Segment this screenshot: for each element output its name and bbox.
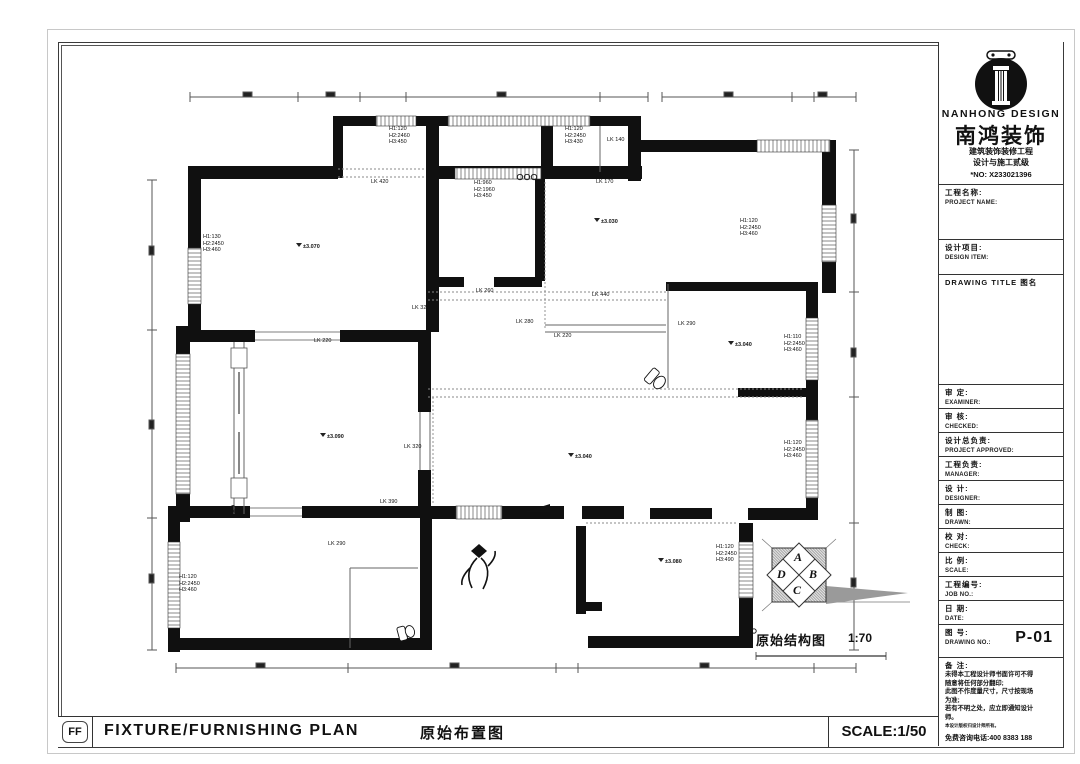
field-label-cn: 工程编号:	[945, 579, 1063, 590]
window-height-label: H1:130 H2:2450 H3:460	[203, 234, 224, 254]
title-block-field-row: 制 图:DRAWN:	[939, 505, 1063, 529]
opening-width-label: LK 290	[678, 321, 695, 328]
scale-value: SCALE:1/50	[829, 717, 939, 746]
note-line: 随意将任何部分翻印;	[945, 680, 1063, 689]
elevation-label: ±3.030	[594, 218, 618, 226]
window-height-label: H1:120 H2:2450 H3:490	[716, 544, 737, 564]
brand-license-no: *NO: X233021396	[939, 170, 1063, 179]
opening-width-label: LK 420	[371, 179, 388, 186]
title-block-field-row: 比 例:SCALE:	[939, 553, 1063, 577]
field-label-en: DESIGNER:	[945, 496, 1063, 502]
note-line: 师。	[945, 714, 1063, 723]
field-label-cn: 日 期:	[945, 603, 1063, 614]
wardrobe-panels	[231, 348, 247, 498]
title-block-field-row: 审 核:CHECKED:	[939, 409, 1063, 433]
title-block-field-row: 校 对:CHECK:	[939, 529, 1063, 553]
compass-letter: B	[809, 567, 817, 582]
note-line: 若有不明之处，应立即通知设计	[945, 705, 1063, 714]
title-block: NANHONG DESIGN 南鸿装饰 建筑装饰装修工程 设计与施工贰级 *NO…	[938, 42, 1063, 746]
nanhong-logo-icon	[973, 50, 1029, 112]
brand-subtitle-2: 设计与施工贰级	[939, 157, 1063, 168]
title-block-field-row: 设 计:DESIGNER:	[939, 481, 1063, 505]
title-block-fields: 工程名称:PROJECT NAME:设计项目:DESIGN ITEM:DRAWI…	[939, 185, 1063, 625]
compass-letter: C	[793, 583, 801, 598]
field-label-en: DRAWN:	[945, 520, 1063, 526]
window-height-label: H1:120 H2:2450 H3:460	[740, 218, 761, 238]
note-line: 未得本工程设计师书面许可不得	[945, 671, 1063, 680]
field-label-cn: 设 计:	[945, 483, 1063, 494]
opening-width-label: LK 140	[607, 137, 624, 144]
sheet-code-badge: FF	[62, 721, 88, 743]
bottom-title-bar: FF FIXTURE/FURNISHING PLAN 原始布置图 SCALE:1…	[58, 716, 938, 747]
sheet-code-cell: FF	[58, 717, 93, 747]
title-block-field-row: 工程名称:PROJECT NAME:	[939, 185, 1063, 240]
compass-letter: D	[777, 567, 786, 582]
opening-width-label: LK 260	[476, 288, 493, 295]
opening-width-label: LK 280	[516, 319, 533, 326]
floor-plan-drawing	[0, 0, 1080, 764]
field-label-cn: 设计总负责:	[945, 435, 1063, 446]
opening-width-label: LK 440	[592, 292, 609, 299]
note-line: 此图不作度量尺寸，尺寸按现场	[945, 688, 1063, 697]
field-label-cn: 工程负责:	[945, 459, 1063, 470]
opening-width-label: LK 170	[596, 179, 613, 186]
openings	[250, 330, 340, 518]
opening-width-label: LK 220	[554, 333, 571, 340]
notes-lines: 未得本工程设计师书面许可不得随意将任何部分翻印;此图不作度量尺寸，尺寸按现场为准…	[945, 671, 1063, 722]
field-label-en: DESIGN ITEM:	[945, 255, 1063, 261]
field-label-cn: 制 图:	[945, 507, 1063, 518]
field-label-en: EXAMINER:	[945, 400, 1063, 406]
title-block-field-row: 设计总负责:PROJECT APPROVED:	[939, 433, 1063, 457]
compass-letter: A	[794, 550, 802, 565]
field-label-cn: 校 对:	[945, 531, 1063, 542]
drawing-sheet: H1:130 H2:2450 H3:460H1:120 H2:2460 H3:4…	[0, 0, 1080, 764]
field-label-en: PROJECT NAME:	[945, 200, 1063, 206]
brand-name-en: NANHONG DESIGN	[939, 108, 1063, 120]
field-label-cn: 设计项目:	[945, 242, 1063, 253]
window-height-label: H1:120 H2:2450 H3:460	[784, 440, 805, 460]
note-line: 为准;	[945, 697, 1063, 706]
title-block-field-row: DRAWING TITLE 图名	[939, 275, 1063, 385]
title-block-field-row: 工程编号:JOB NO.:	[939, 577, 1063, 601]
elevation-label: ±3.090	[320, 433, 344, 441]
brand-subtitle-1: 建筑装饰装修工程	[939, 146, 1063, 157]
thin-partitions	[234, 126, 668, 648]
field-label-en: PROJECT APPROVED:	[945, 448, 1063, 454]
window-height-label: H1:120 H2:2450 H3:430	[565, 126, 586, 146]
plumbing-circles-icon	[231, 506, 757, 648]
person-figure-icon	[462, 544, 495, 589]
title-block-field-row: 工程负责:MANAGER:	[939, 457, 1063, 481]
field-label-en: CHECKED:	[945, 424, 1063, 430]
sheet-title-en: FIXTURE/FURNISHING PLAN	[104, 722, 359, 740]
title-block-field-row: 审 定:EXAMINER:	[939, 385, 1063, 409]
window-height-label: H1:960 H2:1960 H3:450	[474, 180, 495, 200]
scale-cell: SCALE:1/50	[828, 717, 939, 747]
drawing-no-row: 图 号: DRAWING NO.: P-01	[939, 625, 1063, 658]
window-height-label: H1:120 H2:2460 H3:450	[389, 126, 410, 146]
field-label-cn: 审 核:	[945, 411, 1063, 422]
plan-caption: 原始结构图	[756, 630, 826, 649]
field-label-en: JOB NO.:	[945, 592, 1063, 598]
field-label-en: MANAGER:	[945, 472, 1063, 478]
opening-width-label: LK 220	[314, 338, 331, 345]
hotline-phone: 免费咨询电话:400 8383 188	[945, 733, 1063, 743]
field-label-cn: DRAWING TITLE 图名	[945, 277, 1063, 288]
elevation-label: ±3.040	[728, 341, 752, 349]
window-height-label: H1:110 H2:2450 H3:460	[784, 334, 805, 354]
title-block-field-row: 设计项目:DESIGN ITEM:	[939, 240, 1063, 275]
field-label-en: CHECK:	[945, 544, 1063, 550]
elevation-label: ±3.040	[568, 453, 592, 461]
opening-width-label: LK 320	[404, 444, 421, 451]
caption-underline	[756, 652, 886, 660]
field-label-en: SCALE:	[945, 568, 1063, 574]
notes-section: 备 注: 未得本工程设计师书面许可不得随意将任何部分翻印;此图不作度量尺寸，尺寸…	[939, 658, 1063, 744]
opening-width-label: LK 290	[328, 541, 345, 548]
opening-width-label: LK 320	[412, 305, 429, 312]
drawing-no-value: P-01	[1015, 629, 1053, 647]
field-label-cn: 审 定:	[945, 387, 1063, 398]
field-label-en: DATE:	[945, 616, 1063, 622]
elevation-label: ±3.070	[296, 243, 320, 251]
logo-section: NANHONG DESIGN 南鸿装饰 建筑装饰装修工程 设计与施工贰级 *NO…	[939, 42, 1063, 185]
elevation-label: ±3.080	[658, 558, 682, 566]
window-height-label: H1:120 H2:2450 H3:460	[179, 574, 200, 594]
field-label-cn: 工程名称:	[945, 187, 1063, 198]
notes-label: 备 注:	[945, 660, 1063, 671]
toilet-icon	[644, 367, 669, 391]
plan-caption-scale: 1:70	[848, 631, 872, 645]
walls	[168, 116, 836, 652]
field-label-cn: 比 例:	[945, 555, 1063, 566]
notes-fine-print: 本设计版权归设计师所有。	[945, 723, 1063, 729]
sheet-title-cn: 原始布置图	[420, 722, 505, 743]
opening-width-label: LK 390	[380, 499, 397, 506]
title-block-field-row: 日 期:DATE:	[939, 601, 1063, 625]
